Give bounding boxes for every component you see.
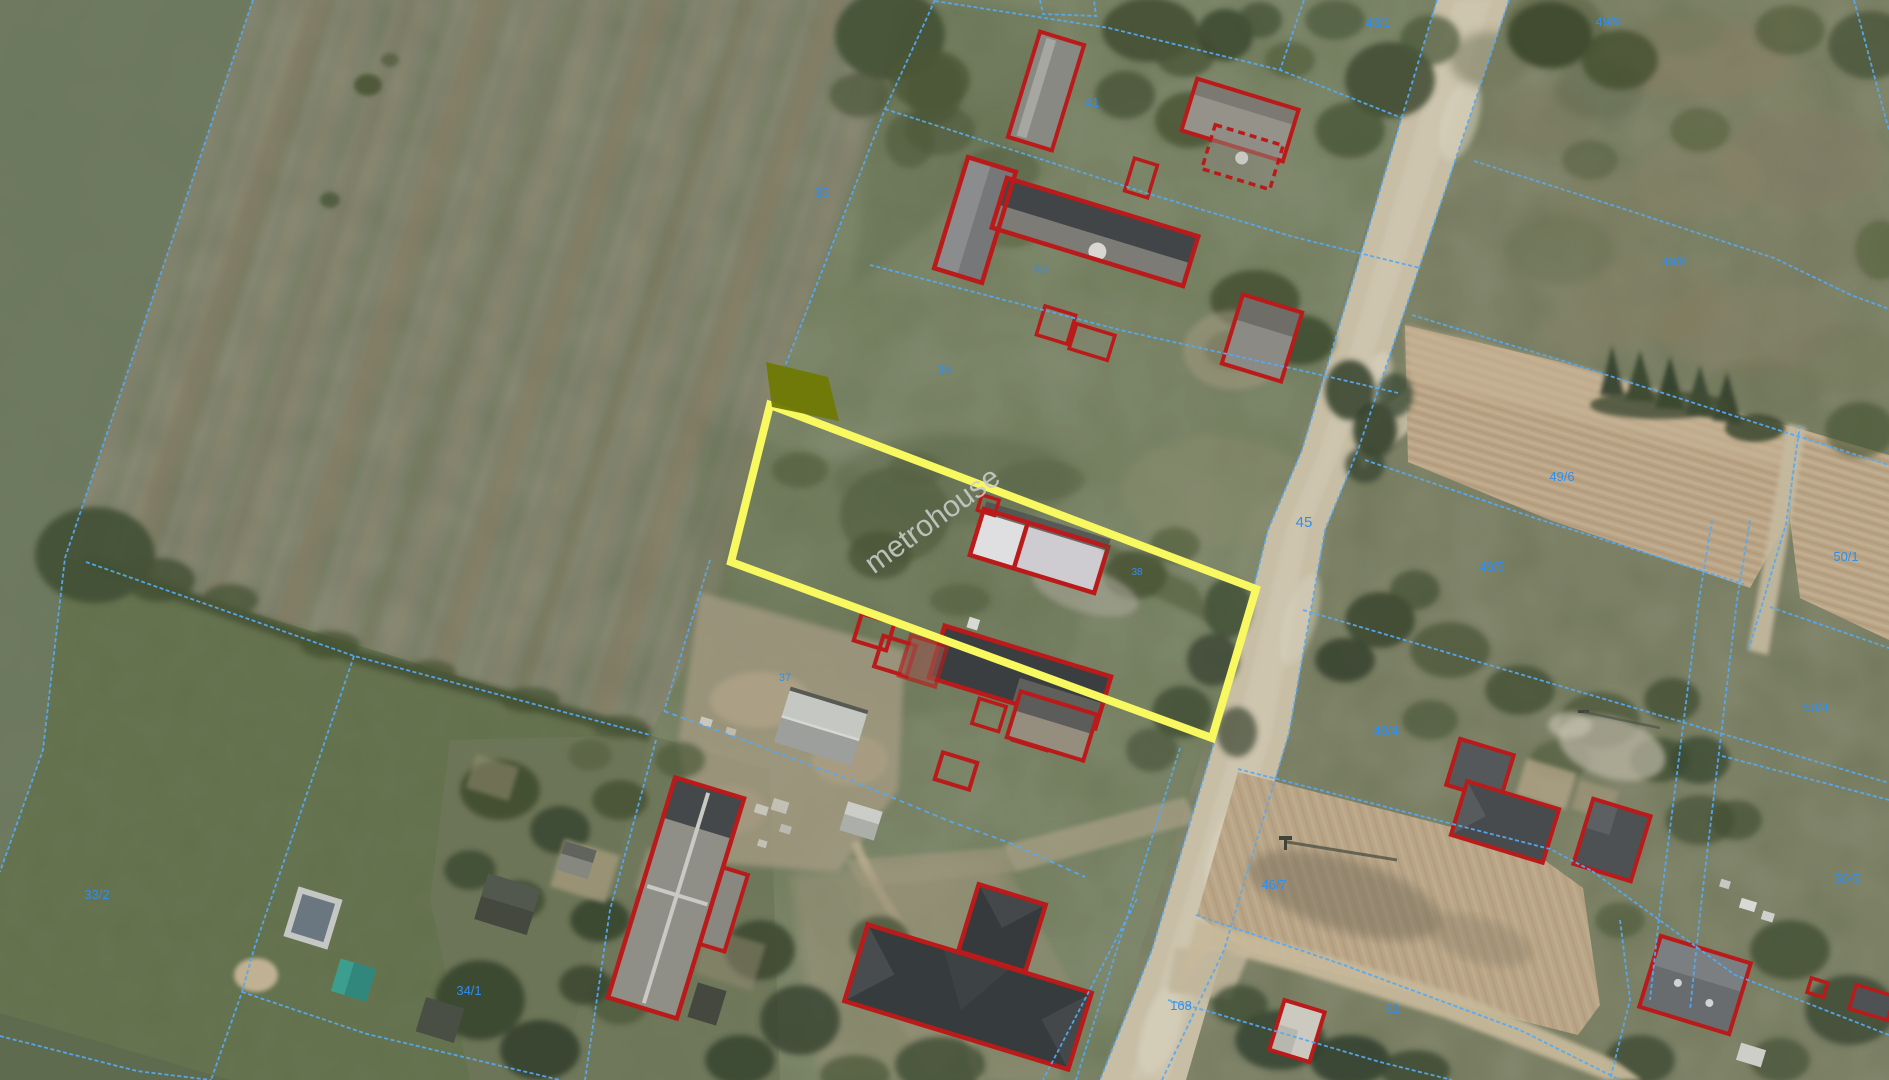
svg-text:168: 168 — [1170, 998, 1192, 1013]
svg-text:41: 41 — [1085, 95, 1099, 110]
svg-text:40: 40 — [1033, 262, 1047, 277]
svg-text:43/1: 43/1 — [1365, 15, 1390, 30]
svg-text:37: 37 — [779, 672, 791, 684]
svg-text:46/7: 46/7 — [1261, 877, 1286, 892]
svg-text:45: 45 — [1296, 514, 1313, 531]
svg-text:34/1: 34/1 — [456, 983, 481, 998]
svg-text:50/1: 50/1 — [1833, 549, 1858, 564]
svg-text:49/5: 49/5 — [1479, 559, 1504, 574]
svg-text:39: 39 — [937, 362, 951, 377]
svg-text:38: 38 — [1131, 567, 1143, 578]
svg-text:50/5: 50/5 — [1834, 871, 1859, 886]
svg-text:50/4: 50/4 — [1803, 700, 1828, 715]
svg-text:49/4: 49/4 — [1373, 723, 1398, 738]
svg-text:61: 61 — [1386, 1001, 1400, 1016]
svg-text:49/8: 49/8 — [1661, 254, 1686, 269]
svg-text:49/6: 49/6 — [1549, 469, 1574, 484]
svg-text:35: 35 — [815, 185, 829, 200]
svg-text:33/2: 33/2 — [84, 887, 109, 902]
svg-text:49/9: 49/9 — [1595, 14, 1620, 29]
